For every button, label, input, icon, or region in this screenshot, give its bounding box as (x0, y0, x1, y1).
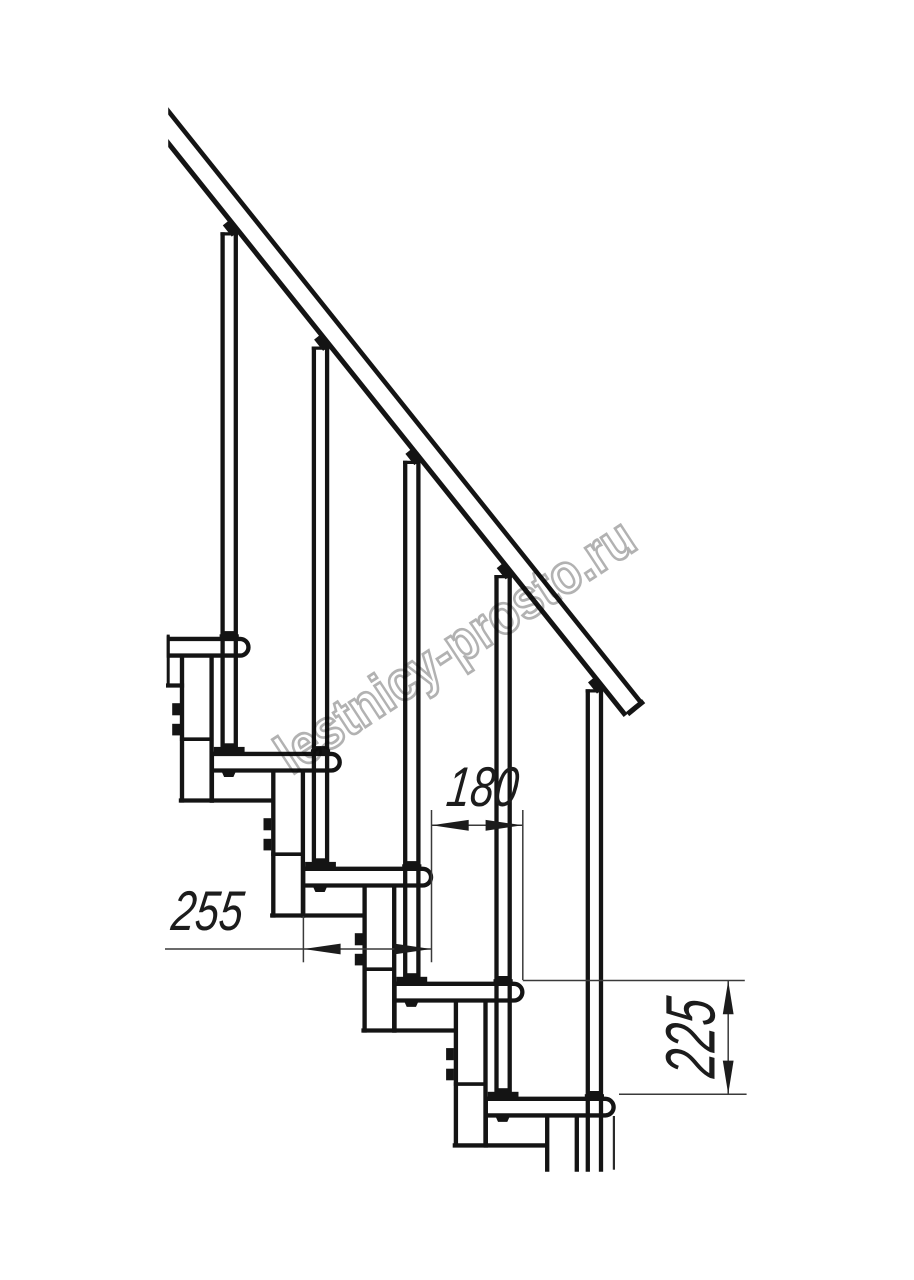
svg-text:225: 225 (651, 993, 729, 1082)
svg-text:180: 180 (443, 756, 522, 819)
svg-text:255: 255 (168, 880, 248, 943)
